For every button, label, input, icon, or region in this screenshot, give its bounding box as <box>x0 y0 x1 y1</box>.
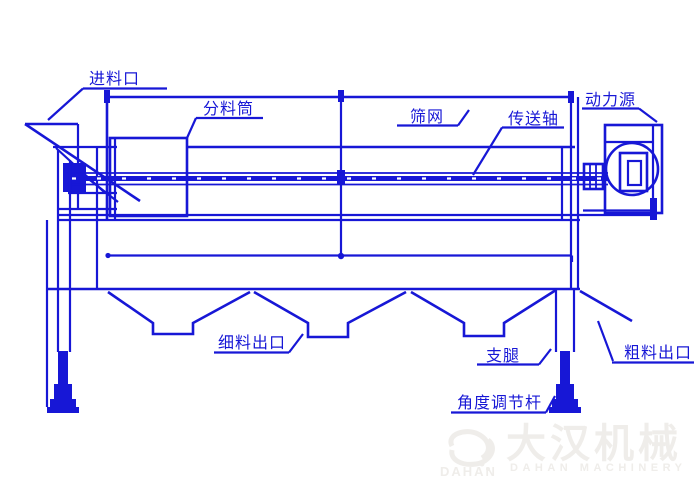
housing-frame <box>46 90 655 321</box>
motor-hub-inner <box>628 161 641 185</box>
discharge-hopper-2 <box>254 292 406 337</box>
discharge-hoppers <box>108 290 556 337</box>
watermark-text-block: 大汉机械 DAHAN MACHINERY <box>506 424 694 474</box>
label-screen-mesh-text: 筛网 <box>410 107 444 126</box>
watermark-name-cn: 大汉机械 <box>506 424 694 464</box>
left-jack-stem <box>58 351 68 386</box>
label-power-source-text: 动力源 <box>585 91 636 109</box>
right-jack-stem <box>560 351 570 386</box>
discharge-hopper-1 <box>108 292 250 334</box>
right-jack-base-plate <box>549 407 581 413</box>
left-jack-foot <box>50 399 76 408</box>
label-power-source: 动力源 <box>582 91 657 122</box>
label-angle-adjusting-rod-text: 角度调节杆 <box>457 394 542 412</box>
label-support-leg-text: 支腿 <box>486 347 520 365</box>
label-distributor-cylinder-leader <box>187 118 196 138</box>
left-jack-body <box>54 384 72 400</box>
label-screen-mesh-leader <box>458 110 469 126</box>
label-coarse-material-outlet: 粗料出口 <box>598 321 694 363</box>
screen-drum <box>187 147 575 219</box>
label-distributor-cylinder: 分料筒 <box>187 100 263 138</box>
motor-base-end-bar <box>650 198 657 220</box>
feed-inlet-hopper <box>25 124 140 289</box>
label-fine-material-outlet: 细料出口 <box>214 334 303 353</box>
coarse-outlet-chute-line <box>580 291 632 321</box>
right-jack-body <box>556 384 574 400</box>
label-coarse-material-outlet-leader <box>598 321 613 361</box>
callout-labels: 进料口 分料筒 筛网 传送轴 动力源 <box>48 70 694 413</box>
label-support-leg: 支腿 <box>477 347 551 365</box>
label-transmission-shaft-leader <box>473 128 502 176</box>
line-drawing: 进料口 分料筒 筛网 传送轴 动力源 <box>0 0 700 489</box>
watermark-logo-text: DAHAN <box>440 464 497 479</box>
support-leg-right <box>549 290 581 413</box>
left-jack-base-plate <box>47 407 79 413</box>
label-distributor-cylinder-text: 分料筒 <box>203 100 254 118</box>
label-coarse-material-outlet-text: 粗料出口 <box>624 344 692 362</box>
label-angle-adjusting-rod: 角度调节杆 <box>451 394 555 413</box>
label-fine-material-outlet-text: 细料出口 <box>218 334 286 352</box>
label-transmission-shaft-text: 传送轴 <box>508 110 559 128</box>
trommel-screen-diagram: 进料口 分料筒 筛网 传送轴 动力源 <box>0 0 700 489</box>
label-fine-material-outlet-leader <box>289 334 303 353</box>
label-transmission-shaft: 传送轴 <box>473 110 564 175</box>
label-feed-inlet-text: 进料口 <box>89 70 140 88</box>
watermark: DAHAN 大汉机械 DAHAN MACHINERY <box>438 424 694 484</box>
motor-pulley <box>606 143 658 195</box>
label-screen-mesh: 筛网 <box>397 107 469 126</box>
label-feed-inlet-leader <box>48 89 83 121</box>
label-power-source-leader <box>639 109 657 123</box>
right-jack-foot <box>552 399 578 408</box>
inner-line-left-dot <box>105 253 110 258</box>
watermark-name-en: DAHAN MACHINERY <box>510 462 694 474</box>
discharge-hopper-3 <box>411 290 556 336</box>
watermark-logo: DAHAN <box>438 424 506 482</box>
label-support-leg-leader <box>539 349 551 365</box>
